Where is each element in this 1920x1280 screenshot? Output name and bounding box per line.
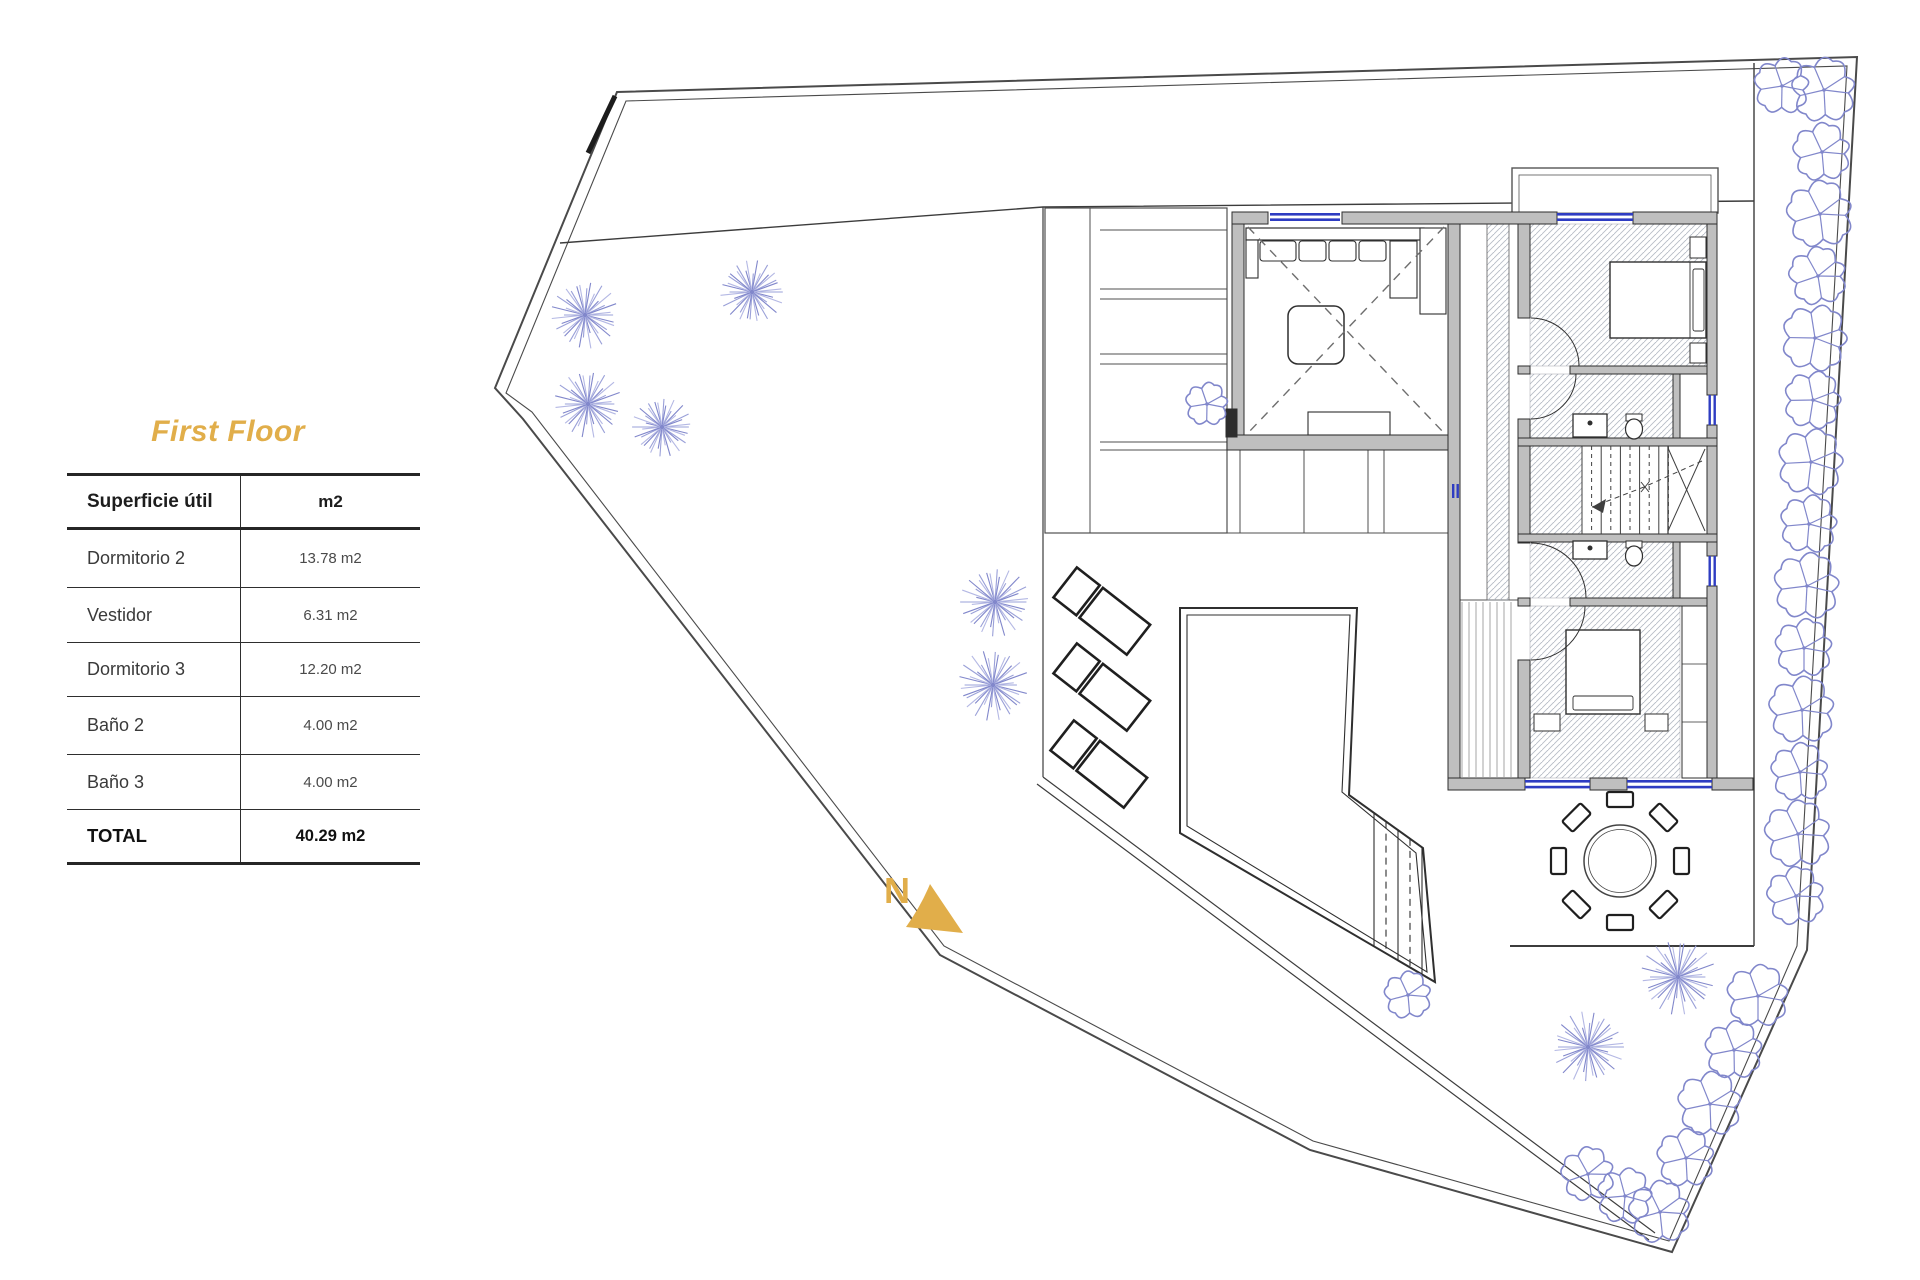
bush-icon: [1793, 123, 1849, 180]
toilet: [1626, 419, 1643, 439]
floor-plan-page: { "page": { "title_floor": "First Floor"…: [0, 0, 1920, 1280]
tree-icon: [555, 373, 619, 438]
bush-icon: [1561, 1147, 1613, 1201]
bush-icon: [1786, 371, 1841, 428]
room-area: 6.31 m2: [240, 588, 420, 642]
page-title: First Floor: [105, 415, 351, 449]
roof-overhang: [1512, 168, 1718, 213]
tree-icon: [1642, 942, 1714, 1014]
tree-icon: [632, 399, 690, 456]
coffee-table: [1288, 306, 1344, 364]
room-label: Vestidor: [67, 588, 240, 642]
tree-icon: [960, 651, 1027, 720]
room-area: 4.00 m2: [240, 755, 420, 809]
table-header-row: Superficie útil m2: [67, 476, 420, 530]
dining-chair: [1607, 915, 1633, 930]
stair-arrow: [1592, 499, 1606, 513]
dining-chair: [1649, 890, 1678, 919]
sun-lounger: [1050, 720, 1147, 807]
table-row: Dormitorio 3 12.20 m2: [67, 643, 420, 697]
header-unit: m2: [240, 476, 420, 527]
bush-icon: [1678, 1071, 1740, 1134]
staircase: [1582, 446, 1705, 534]
room-area: 12.20 m2: [240, 643, 420, 696]
wardrobe: [1682, 606, 1707, 778]
nightstand: [1690, 343, 1706, 363]
table-row: Baño 2 4.00 m2: [67, 697, 420, 755]
nightstand: [1534, 714, 1560, 731]
bush-icon: [1755, 58, 1809, 113]
bush-icon: [1767, 867, 1823, 925]
dining-chair: [1649, 803, 1678, 832]
bush-icon: [1727, 965, 1787, 1026]
bush-icon: [1384, 971, 1430, 1018]
dining-chair: [1562, 803, 1591, 832]
sun-lounger: [1053, 567, 1150, 654]
total-label: TOTAL: [67, 810, 240, 862]
nightstand: [1645, 714, 1668, 731]
room-area: 4.00 m2: [240, 697, 420, 754]
room-label: Baño 2: [67, 697, 240, 754]
table-total-row: TOTAL 40.29 m2: [67, 810, 420, 865]
table-row: Vestidor 6.31 m2: [67, 588, 420, 643]
tree-icon: [721, 261, 783, 321]
bush-icon: [1186, 382, 1228, 424]
room-area: 13.78 m2: [240, 530, 420, 587]
bush-icon: [1781, 495, 1837, 552]
bush-icon: [1598, 1168, 1652, 1223]
north-label: N: [884, 870, 910, 911]
stair-landing-floor: [1530, 446, 1582, 534]
tree-icon: [552, 283, 616, 348]
swimming-pool: [1180, 608, 1435, 982]
dining-chair: [1562, 890, 1591, 919]
total-area: 40.29 m2: [240, 810, 420, 862]
bush-icon: [1765, 800, 1829, 866]
room-label: Dormitorio 2: [67, 530, 240, 587]
room-label: Baño 3: [67, 755, 240, 809]
room-label: Dormitorio 3: [67, 643, 240, 696]
toilet: [1626, 546, 1643, 566]
deck-boards: [1460, 600, 1518, 777]
dining-chair: [1607, 792, 1633, 807]
table-row: Dormitorio 2 13.78 m2: [67, 530, 420, 588]
bush-icon: [1775, 553, 1839, 618]
areas-table: Superficie útil m2 Dormitorio 2 13.78 m2…: [67, 473, 420, 865]
sideboard: [1308, 412, 1390, 435]
nightstand: [1690, 237, 1706, 258]
tree-icon: [1555, 1012, 1624, 1081]
bush-icon: [1787, 180, 1851, 246]
header-label: Superficie útil: [67, 476, 240, 527]
gate-segment: [588, 96, 615, 153]
sofa: [1246, 228, 1446, 314]
dining-chair: [1674, 848, 1689, 874]
tree-icon: [960, 569, 1028, 636]
table-row: Baño 3 4.00 m2: [67, 755, 420, 810]
bush-icon: [1771, 743, 1827, 800]
dining-chair: [1551, 848, 1566, 874]
dining-table: [1551, 792, 1689, 930]
sun-lounger: [1053, 643, 1150, 730]
north-arrow: N: [884, 870, 963, 933]
bush-icon: [1784, 305, 1848, 371]
corridor-strip: [1487, 224, 1509, 600]
bush-icon: [1769, 676, 1834, 741]
